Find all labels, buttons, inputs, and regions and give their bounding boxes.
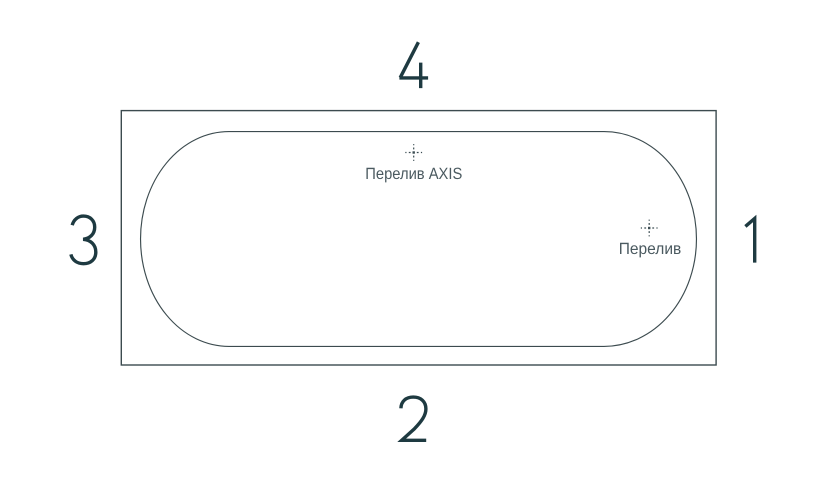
- svg-text:Перелив: Перелив: [619, 240, 682, 258]
- svg-text:Перелив AXIS: Перелив AXIS: [365, 165, 462, 183]
